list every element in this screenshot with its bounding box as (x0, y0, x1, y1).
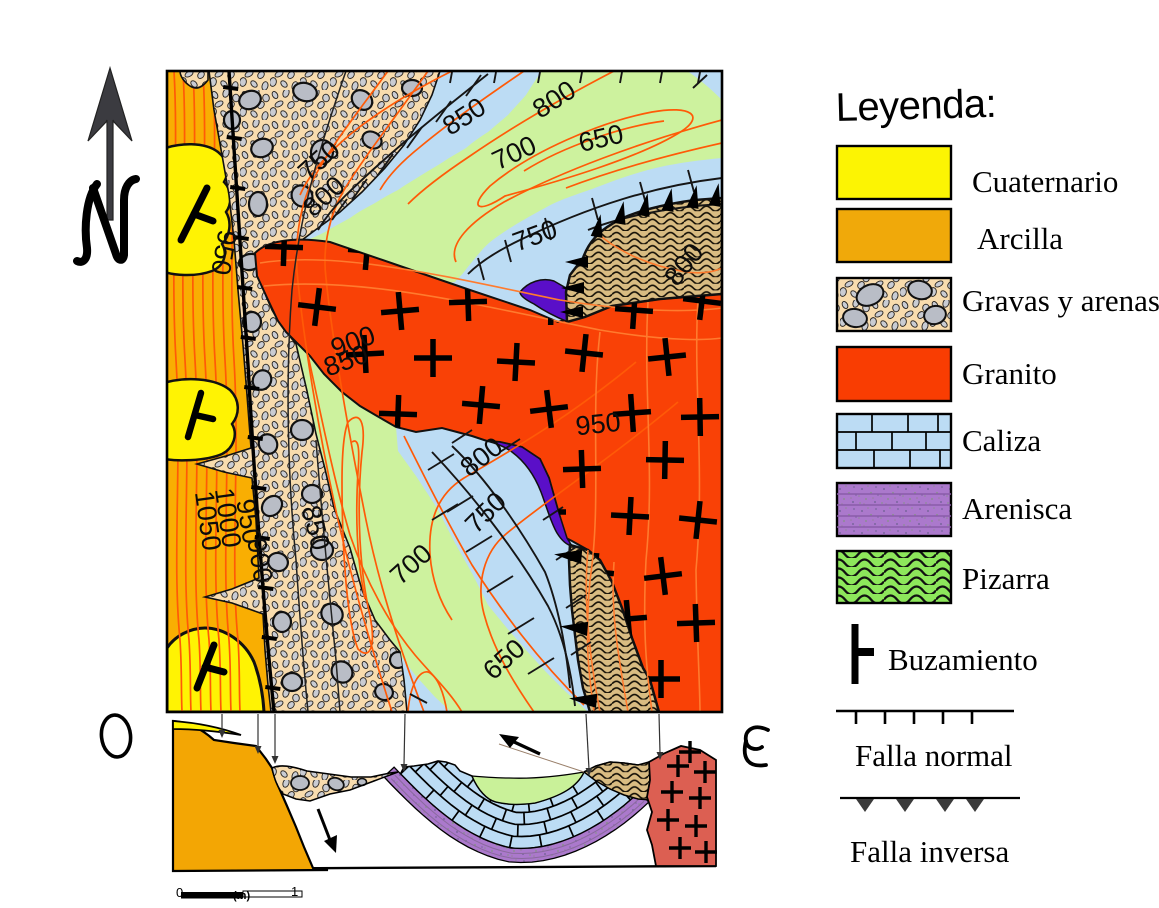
svg-text:(m): (m) (233, 890, 250, 902)
svg-text:0: 0 (176, 885, 183, 900)
svg-text:Granito: Granito (962, 356, 1057, 391)
svg-text:950: 950 (574, 407, 622, 442)
svg-text:Arenisca: Arenisca (962, 491, 1072, 526)
svg-text:Buzamiento: Buzamiento (888, 642, 1038, 677)
svg-text:1: 1 (291, 884, 298, 899)
svg-text:Pizarra: Pizarra (962, 561, 1050, 596)
svg-text:Arcilla: Arcilla (977, 221, 1063, 256)
svg-text:Falla inversa: Falla inversa (850, 834, 1009, 869)
svg-text:Leyenda:: Leyenda: (835, 82, 997, 130)
svg-text:Falla normal: Falla normal (855, 738, 1013, 773)
svg-text:Caliza: Caliza (962, 423, 1041, 458)
svg-text:Gravas y arenas: Gravas y arenas (962, 283, 1159, 318)
svg-text:Cuaternario: Cuaternario (972, 164, 1118, 199)
